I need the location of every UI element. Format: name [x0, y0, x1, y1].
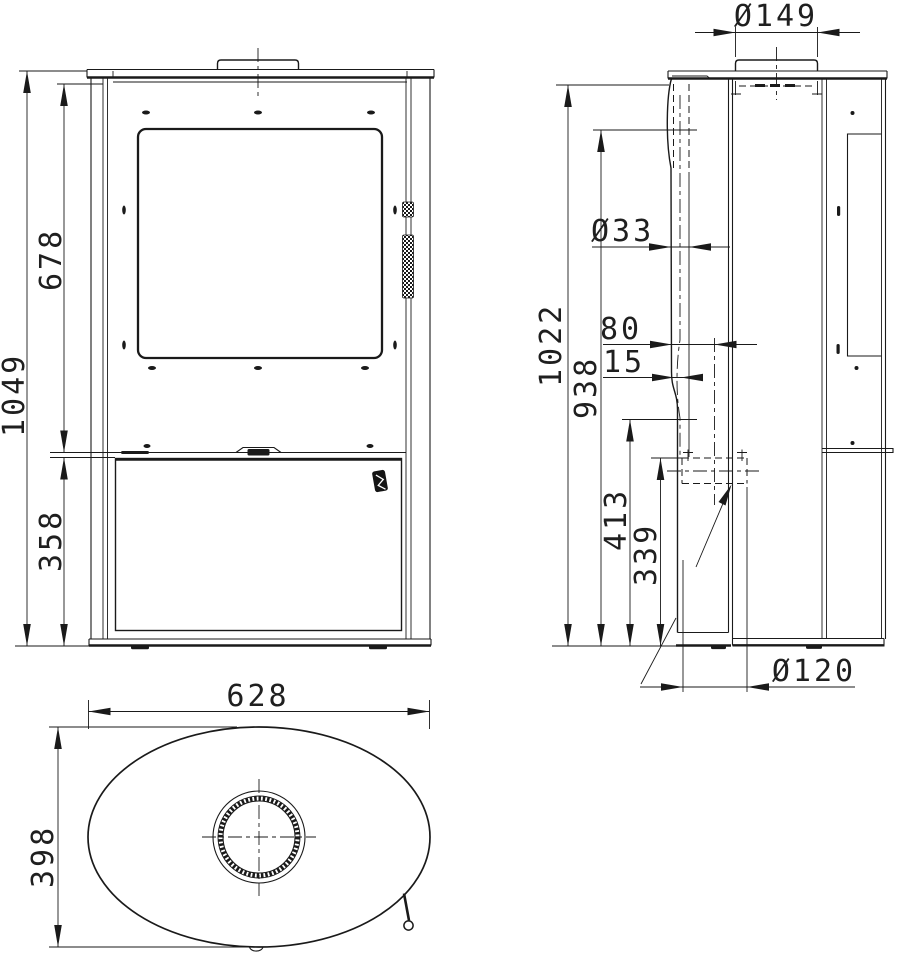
front-base: [89, 639, 431, 649]
lower-door: [116, 459, 402, 631]
dim-front-upper-height: 678: [34, 228, 69, 291]
side-flue-collar: [731, 47, 822, 100]
brand-logo: [372, 470, 388, 493]
technical-drawing-canvas: 1049 678 358: [0, 0, 904, 964]
dim-flue-collar-diameter: Ø149: [734, 0, 818, 34]
dim-side-flue-pipe-height: 938: [569, 356, 604, 419]
front-screw-dots: [122, 111, 397, 449]
dim-pipe-wall-offset: 15: [603, 345, 645, 380]
drawing-page: 1049 678 358: [0, 0, 904, 964]
top-dimensions: 628 398: [26, 679, 430, 947]
side-rear-panel: [733, 79, 894, 649]
front-foot-left: [131, 646, 149, 650]
side-front-profile: [667, 79, 732, 650]
front-view: 1049 678 358: [0, 48, 434, 649]
hinge-mark: [121, 451, 149, 454]
front-top-plate: [87, 70, 434, 83]
front-dimensions: 1049 678 358: [0, 71, 115, 646]
dim-front-lower-height: 358: [34, 509, 69, 572]
latch-handle: [248, 449, 270, 456]
rear-shelf: [822, 449, 893, 453]
side-front-foot: [711, 646, 726, 650]
dim-air-inlet-diameter: Ø120: [772, 654, 856, 689]
rear-panel-recess: [848, 134, 882, 356]
top-view: 628 398: [26, 679, 430, 951]
front-flue-collar: [218, 48, 299, 97]
side-top-plate: [668, 71, 887, 79]
dim-side-overall-height: 1022: [534, 303, 569, 387]
door-handle: [403, 202, 414, 298]
side-dimensions: Ø149 1022 938 413 339 Ø: [534, 0, 860, 692]
top-flue-collar: [202, 779, 316, 896]
dim-pipe-front-offset: 80: [600, 312, 642, 347]
dim-secondary-pipe-diameter: Ø33: [591, 214, 654, 249]
front-divider: [108, 448, 406, 456]
top-door-handle: [404, 894, 413, 931]
side-rear-foot: [806, 645, 822, 649]
side-view: Ø149 1022 938 413 339 Ø: [534, 0, 893, 692]
dim-top-overall-width: 628: [226, 679, 289, 714]
dim-side-inlet-center-height: 339: [629, 523, 664, 586]
spigot-leader-line: [696, 494, 727, 567]
dim-front-total-height: 1049: [0, 353, 32, 437]
dim-top-overall-depth: 398: [26, 825, 61, 888]
door-glass-window: [138, 129, 382, 358]
front-foot-right: [369, 646, 387, 650]
